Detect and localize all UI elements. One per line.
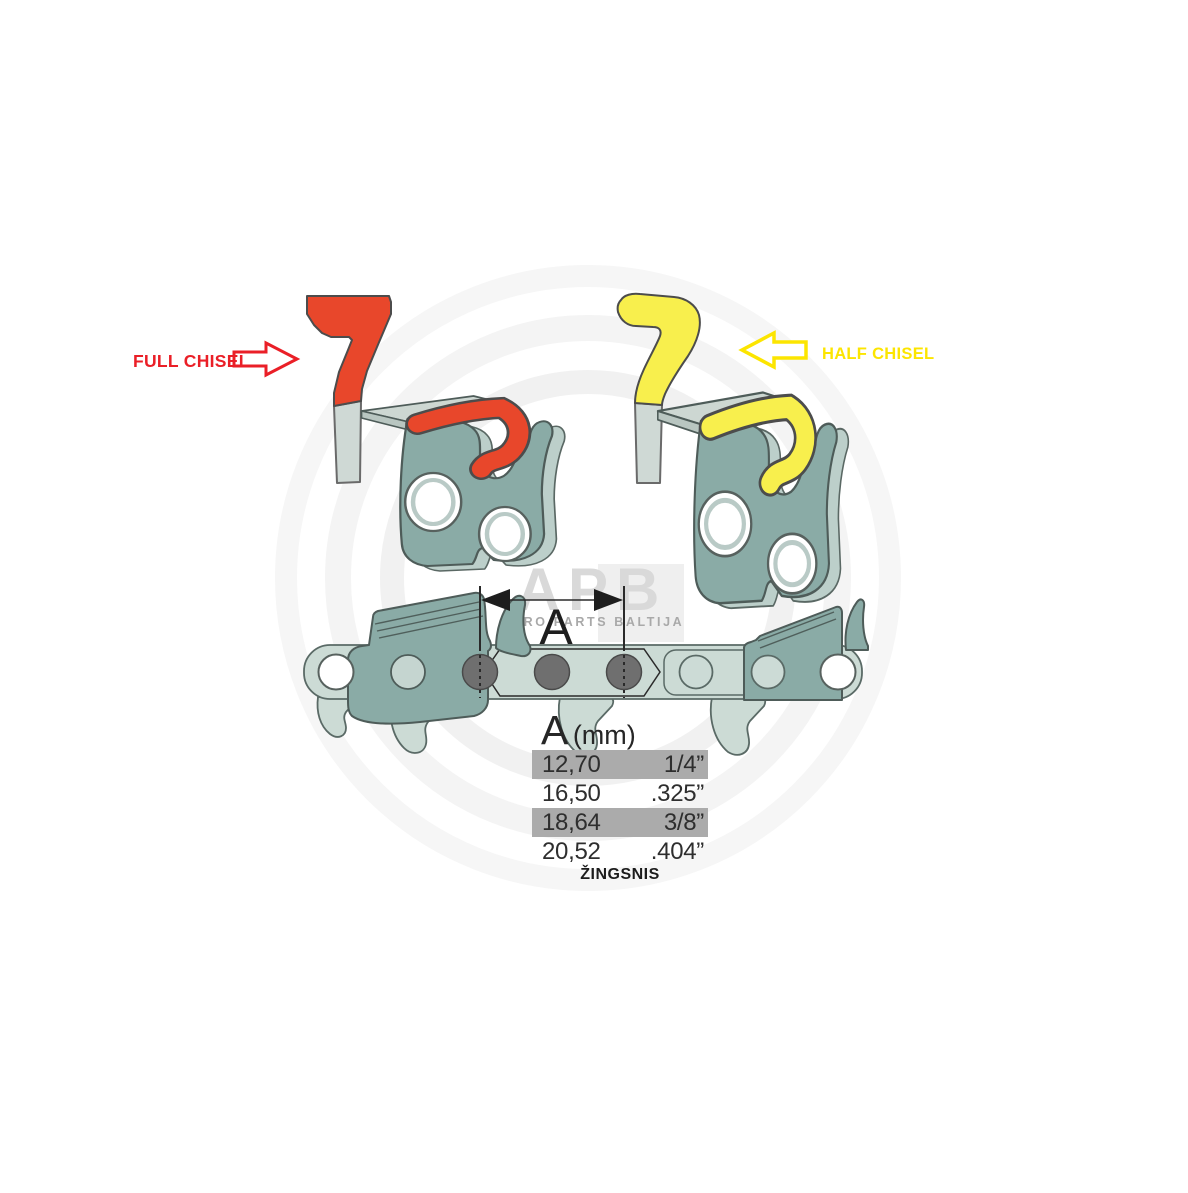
chainsaw-chain-diagram: APB AGRO PARTS BALTIJA FULL CHISEL HALF … (0, 0, 1188, 1188)
table-row: 20,52 .404” (532, 837, 708, 866)
pitch-inch-value: 3/8” (664, 809, 704, 837)
table-row: 16,50 .325” (532, 779, 708, 808)
diagram-canvas: APB AGRO PARTS BALTIJA FULL CHISEL HALF … (0, 0, 1188, 1188)
pitch-caption: ŽINGSNIS (532, 866, 708, 884)
pitch-inch-value: .325” (651, 780, 704, 808)
watermark-subtitle: AGRO PARTS BALTIJA (500, 615, 685, 629)
full-chisel-shank (334, 401, 361, 483)
pitch-header-unit: (mm) (573, 720, 636, 750)
chain-hole (752, 656, 785, 689)
pitch-mm-value: 12,70 (542, 751, 601, 779)
chain-hole-open (319, 655, 354, 690)
chain-rivet (535, 655, 570, 690)
pitch-mm-value: 16,50 (542, 780, 601, 808)
half-chisel-link-3d (658, 392, 849, 608)
table-row: 12,70 1/4” (532, 750, 708, 779)
pitch-table-header: A (mm) (541, 707, 636, 754)
chain-hole (391, 655, 425, 689)
pitch-mm-value: 20,52 (542, 838, 601, 866)
pitch-mm-value: 18,64 (542, 809, 601, 837)
full-chisel-label: FULL CHISEL (133, 351, 250, 371)
pitch-inch-value: 1/4” (664, 751, 704, 779)
chain-hole-open (821, 655, 856, 690)
pitch-table: 12,70 1/4” 16,50 .325” 18,64 3/8” 20,52 … (532, 750, 708, 866)
chain-hole (680, 656, 713, 689)
pitch-header-letter: A (541, 707, 568, 753)
half-chisel-label: HALF CHISEL (822, 345, 934, 363)
dimension-letter: A (539, 599, 573, 655)
pitch-inch-value: .404” (651, 838, 704, 866)
table-row: 18,64 3/8” (532, 808, 708, 837)
